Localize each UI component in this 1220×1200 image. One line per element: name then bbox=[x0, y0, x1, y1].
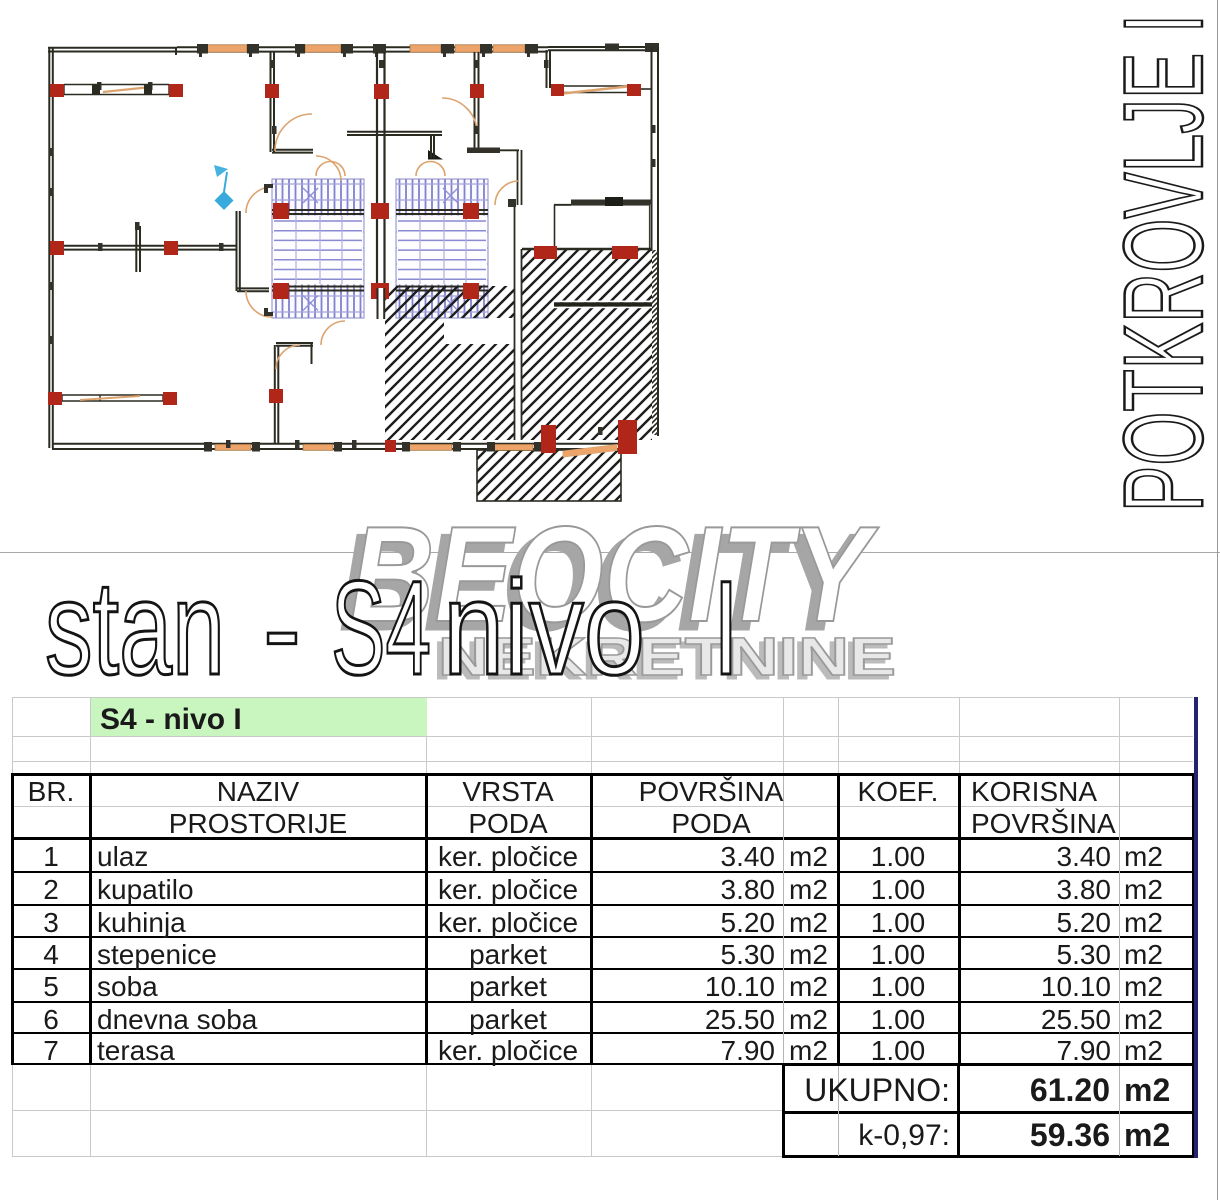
svg-text:I: I bbox=[713, 555, 739, 695]
svg-text:stan: stan bbox=[45, 555, 225, 695]
svg-text:POTKROVLJE I: POTKROVLJE I bbox=[1114, 14, 1214, 512]
svg-text:nivo: nivo bbox=[443, 555, 645, 695]
svg-text:S4: S4 bbox=[331, 555, 431, 695]
svg-text:-: - bbox=[263, 555, 301, 695]
